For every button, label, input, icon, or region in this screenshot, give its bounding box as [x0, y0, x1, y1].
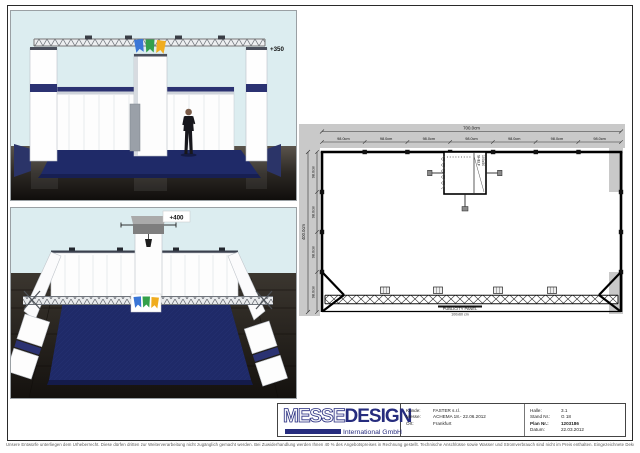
publicity-panel-size: 100x60 cm: [451, 313, 469, 317]
wall-light: [173, 248, 179, 251]
field-halle: Halle:3.1: [530, 409, 567, 414]
svg-text:98.0cm: 98.0cm: [311, 246, 315, 258]
logo-messe-text: MESSE: [283, 406, 345, 427]
dim-label-700: 700.0cm: [463, 126, 480, 131]
storage-room: SHELF 100x50: [441, 152, 486, 194]
tower-cap-front: [133, 224, 164, 234]
svg-text:98.0cm: 98.0cm: [593, 137, 605, 141]
truss-clamp: [85, 36, 92, 40]
storage-label-1: SHELF: [477, 155, 481, 166]
title-block: MESSEDESIGN International GmbH Kunde:FAS…: [277, 403, 626, 437]
rear-view-svg: +400: [11, 208, 296, 398]
truss-clamp: [125, 36, 132, 40]
dim-label-400: 400.0cm: [301, 223, 306, 240]
door-panel: [130, 104, 140, 151]
right-tower: [246, 47, 267, 161]
height-label-400-group: +400: [163, 211, 190, 222]
truss-clamp: [175, 36, 182, 40]
svg-text:98.0cm: 98.0cm: [380, 137, 392, 141]
svg-text:98.0cm: 98.0cm: [465, 137, 477, 141]
height-label-400: +400: [170, 215, 184, 222]
field-plan-nr: Plan Nr.:1203186: [530, 422, 579, 427]
wall-light: [117, 248, 123, 251]
booth-carpet: [47, 301, 253, 385]
field-ort: Ort:Frankfurt: [406, 422, 451, 427]
field-stand-nr: Stand Nr.:G 18: [530, 415, 571, 420]
height-label-350: +350: [270, 46, 284, 53]
field-kunde: Kunde:FASTER s.r.l.: [406, 409, 461, 414]
truss-clamp: [218, 36, 225, 40]
title-block-fields: Kunde:FASTER s.r.l. Messe:ACHEMA 18.- 22…: [401, 404, 625, 436]
footer-disclaimer: Unsere Entwürfe unterliegen dem Urheberr…: [6, 442, 634, 447]
flags-group: [131, 294, 161, 312]
rear-view-rendering: +400: [10, 207, 297, 399]
svg-text:98.0cm: 98.0cm: [423, 137, 435, 141]
svg-text:98.0cm: 98.0cm: [311, 206, 315, 218]
truss-lights: [381, 287, 557, 294]
storage-label-2: 100x50: [481, 155, 485, 166]
company-logo: MESSEDESIGN International GmbH: [278, 404, 401, 436]
svg-text:98.0cm: 98.0cm: [311, 166, 315, 178]
svg-text:98.0cm: 98.0cm: [508, 137, 520, 141]
field-datum: Datum:22.03.2012: [530, 428, 584, 433]
svg-text:98.0cm: 98.0cm: [551, 137, 563, 141]
front-view-svg: +350: [11, 11, 296, 200]
field-column-divider: [524, 404, 525, 436]
publicity-panel-label: PUBLICITY PANEL: [443, 306, 478, 311]
floor-plan-svg: 700.0cm 98.0cm 98.0cm 98.0cm 98.0cm 98.0…: [298, 112, 632, 327]
logo-bar: [285, 429, 341, 434]
wall-light: [219, 248, 225, 251]
wall-light: [69, 248, 75, 251]
left-tower: [30, 47, 57, 161]
svg-text:98.0cm: 98.0cm: [311, 286, 315, 298]
field-messe: Messe:ACHEMA 18.- 22.06.2012: [406, 415, 486, 420]
tower-cap-top: [131, 216, 166, 224]
floor-plan-drawing: 700.0cm 98.0cm 98.0cm 98.0cm 98.0cm 98.0…: [298, 112, 632, 327]
logo-subtitle: International GmbH: [343, 429, 402, 436]
svg-text:98.0cm: 98.0cm: [337, 137, 349, 141]
front-view-rendering: +350: [10, 10, 297, 201]
